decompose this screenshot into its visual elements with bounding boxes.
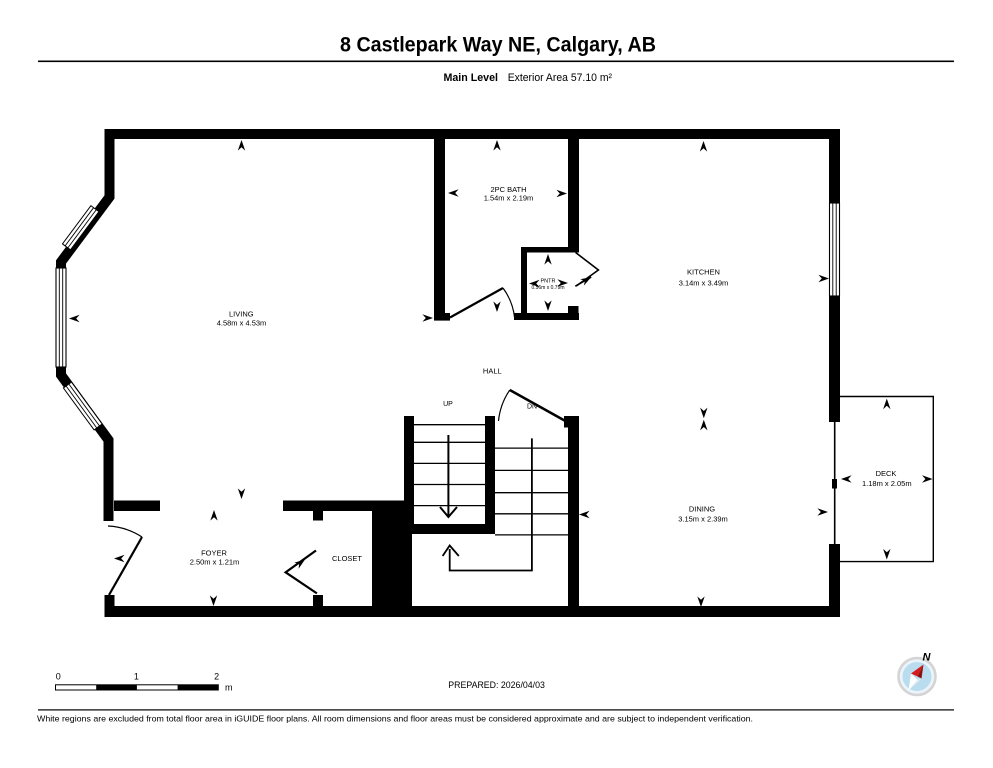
svg-text:3.15m x 2.39m: 3.15m x 2.39m	[678, 515, 728, 524]
svg-text:N: N	[923, 652, 932, 664]
svg-text:UP: UP	[443, 401, 453, 408]
svg-text:1: 1	[134, 672, 139, 682]
svg-text:PNTR: PNTR	[541, 279, 556, 285]
svg-text:LIVING: LIVING	[229, 310, 254, 319]
svg-text:HALL: HALL	[483, 367, 502, 376]
svg-text:DECK: DECK	[876, 469, 897, 478]
svg-text:0.56m x 0.79m: 0.56m x 0.79m	[531, 285, 564, 291]
svg-text:8 Castlepark Way NE, Calgary,: 8 Castlepark Way NE, Calgary, AB	[340, 34, 656, 57]
svg-text:0: 0	[56, 672, 61, 682]
svg-text:DINING: DINING	[689, 505, 715, 514]
svg-text:Main Level: Main Level	[444, 72, 499, 84]
svg-text:Exterior Area 57.10 m²: Exterior Area 57.10 m²	[508, 72, 613, 84]
svg-text:CLOSET: CLOSET	[332, 554, 362, 563]
svg-text:FOYER: FOYER	[201, 549, 227, 558]
svg-text:2.50m x 1.21m: 2.50m x 1.21m	[190, 558, 240, 567]
svg-text:1.54m x 2.19m: 1.54m x 2.19m	[484, 194, 534, 203]
svg-text:DN: DN	[527, 404, 537, 411]
svg-text:White regions are excluded fro: White regions are excluded from total fl…	[37, 714, 753, 724]
svg-text:m: m	[225, 683, 233, 693]
svg-text:PREPARED: 2026/04/03: PREPARED: 2026/04/03	[448, 680, 545, 691]
svg-text:4.58m x 4.53m: 4.58m x 4.53m	[217, 319, 267, 328]
svg-text:1.18m x 2.05m: 1.18m x 2.05m	[862, 479, 912, 488]
svg-text:KITCHEN: KITCHEN	[687, 268, 720, 277]
svg-text:2: 2	[214, 672, 219, 682]
svg-text:3.14m x 3.49m: 3.14m x 3.49m	[679, 279, 729, 288]
